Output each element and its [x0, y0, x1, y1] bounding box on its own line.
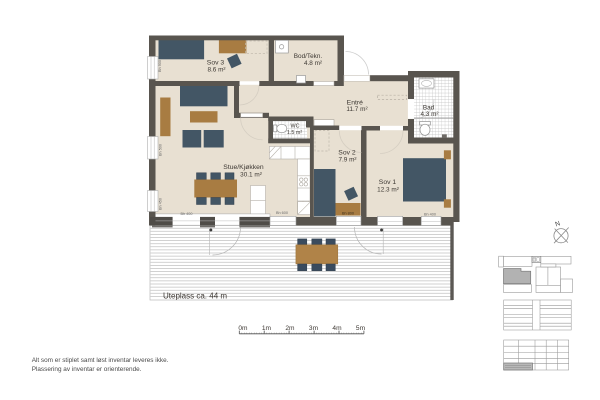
- svg-text:1m: 1m: [262, 325, 272, 332]
- svg-text:Bh 800: Bh 800: [342, 211, 354, 215]
- svg-text:Bh 600: Bh 600: [276, 211, 288, 215]
- svg-text:Bh 900: Bh 900: [158, 60, 162, 72]
- svg-text:Bh 450: Bh 450: [159, 198, 163, 210]
- svg-text:Bh 500: Bh 500: [159, 144, 163, 156]
- svg-text:8.6 m²: 8.6 m²: [207, 67, 225, 74]
- svg-text:0m: 0m: [238, 325, 248, 332]
- svg-text:12.3 m²: 12.3 m²: [377, 187, 399, 194]
- svg-text:Alt som er stiplet samt løst i: Alt som er stiplet samt løst inventar le…: [32, 357, 169, 364]
- svg-text:2m: 2m: [285, 325, 295, 332]
- svg-text:4.3 m²: 4.3 m²: [420, 111, 438, 118]
- svg-text:Bh 400: Bh 400: [424, 212, 436, 216]
- svg-text:5m: 5m: [356, 325, 366, 332]
- svg-text:Plassering av inventar er orie: Plassering av inventar er orienterende.: [32, 366, 142, 373]
- svg-text:WC: WC: [291, 124, 300, 130]
- svg-text:Sov 3: Sov 3: [207, 60, 225, 67]
- svg-text:Bh 400: Bh 400: [180, 212, 192, 216]
- svg-text:11.7 m²: 11.7 m²: [346, 106, 367, 113]
- svg-text:4m: 4m: [332, 325, 342, 332]
- svg-text:Uteplass ca. 44 m: Uteplass ca. 44 m: [163, 292, 227, 301]
- svg-text:Stue/Kjøkken: Stue/Kjøkken: [223, 164, 264, 171]
- svg-text:30.1 m²: 30.1 m²: [240, 172, 262, 179]
- svg-text:3m: 3m: [309, 325, 319, 332]
- svg-text:1.5 m²: 1.5 m²: [287, 130, 302, 136]
- svg-text:Sov 2: Sov 2: [338, 150, 356, 157]
- svg-text:Sov 1: Sov 1: [379, 179, 397, 186]
- svg-text:7.9 m²: 7.9 m²: [338, 157, 356, 164]
- svg-text:4.8 m²: 4.8 m²: [304, 60, 322, 67]
